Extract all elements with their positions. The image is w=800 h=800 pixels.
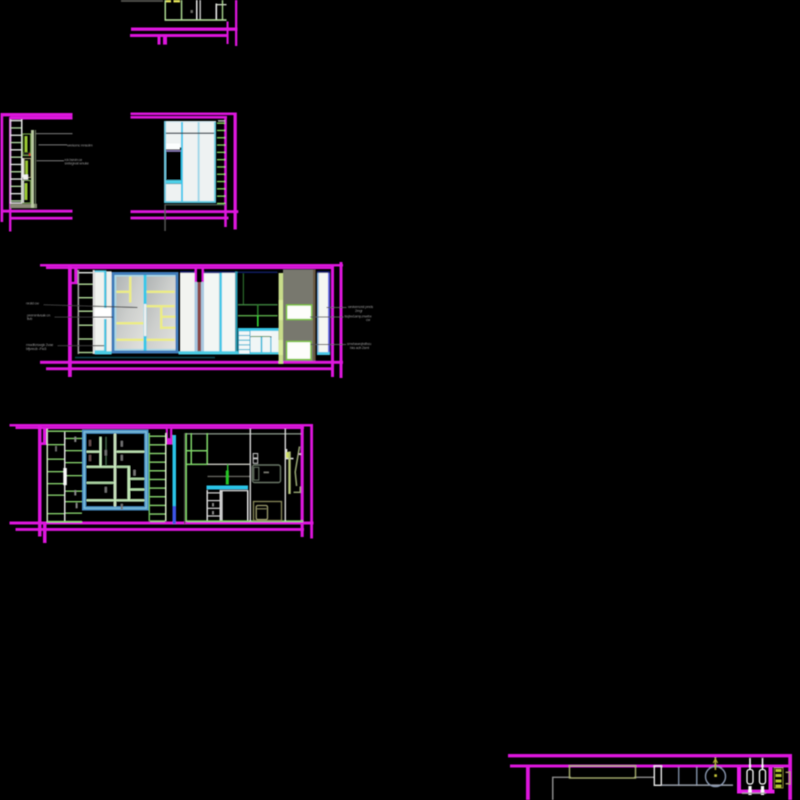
svg-text:sretegrvat wnuke: sretegrvat wnuke	[65, 162, 89, 166]
svg-text:wrekornc mnsotm: wrekornc mnsotm	[67, 144, 93, 148]
svg-text:bks acfr-2smt: bks acfr-2smt	[350, 346, 369, 350]
svg-text:cw: cw	[366, 318, 371, 322]
svg-text:tivb: tivb	[27, 317, 32, 321]
svg-text:2mgr: 2mgr	[355, 309, 363, 313]
svg-text:nrotd cw: nrotd cw	[26, 301, 39, 305]
svg-text:bfjvrecb -Fw3: bfjvrecb -Fw3	[26, 347, 46, 351]
